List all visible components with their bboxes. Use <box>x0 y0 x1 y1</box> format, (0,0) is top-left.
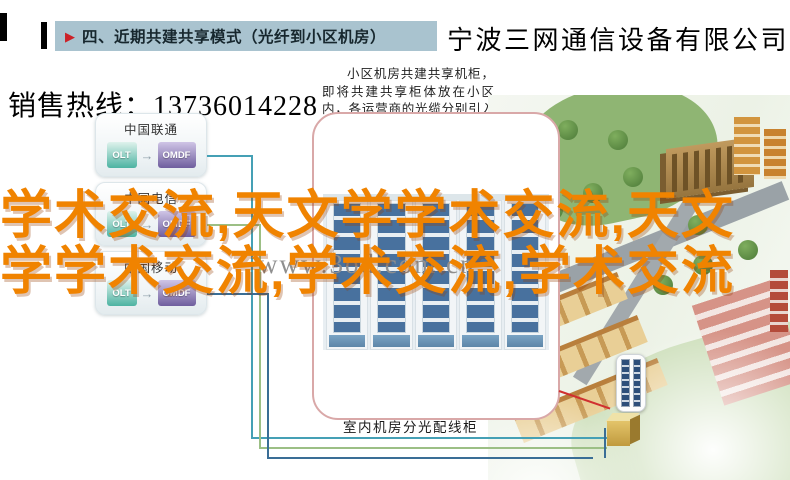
section-title: 四、近期共建共享模式（光纤到小区机房） <box>82 25 386 47</box>
outdoor-cabinet-3d <box>630 415 640 445</box>
orange-watermark-line1: 学术交流,天文学学术交流,天文 <box>0 188 735 244</box>
section-header-bar: ▶ 四、近期共建共享模式（光纤到小区机房） <box>55 21 437 51</box>
arrow-right-icon: → <box>141 149 154 162</box>
company-name: 宁波三网通信设备有限公司 <box>447 20 789 57</box>
rack-image <box>621 359 630 407</box>
rack-image <box>633 359 642 407</box>
left-edge-mark <box>0 13 7 41</box>
omdf-node: OMDF <box>158 142 196 168</box>
indoor-cabinet-caption: 室内机房分光配线柜 <box>343 416 478 436</box>
cabinet-feed-line <box>604 428 606 458</box>
header-notch <box>41 22 47 49</box>
outdoor-cabinet-3d <box>607 421 630 446</box>
outdoor-cabinet-callout <box>616 354 646 412</box>
orange-watermark-line2: 学学术交流,学术交流,学术交流 <box>0 244 735 300</box>
operator-name: 中国联通 <box>96 119 206 138</box>
operator-card-unicom: 中国联通 OLT → OMDF <box>95 113 207 177</box>
olt-node: OLT <box>107 142 137 168</box>
slide-canvas: ▶ 四、近期共建共享模式（光纤到小区机房） 宁波三网通信设备有限公司 销售热线：… <box>0 0 790 480</box>
red-triangle-icon: ▶ <box>65 30 75 43</box>
